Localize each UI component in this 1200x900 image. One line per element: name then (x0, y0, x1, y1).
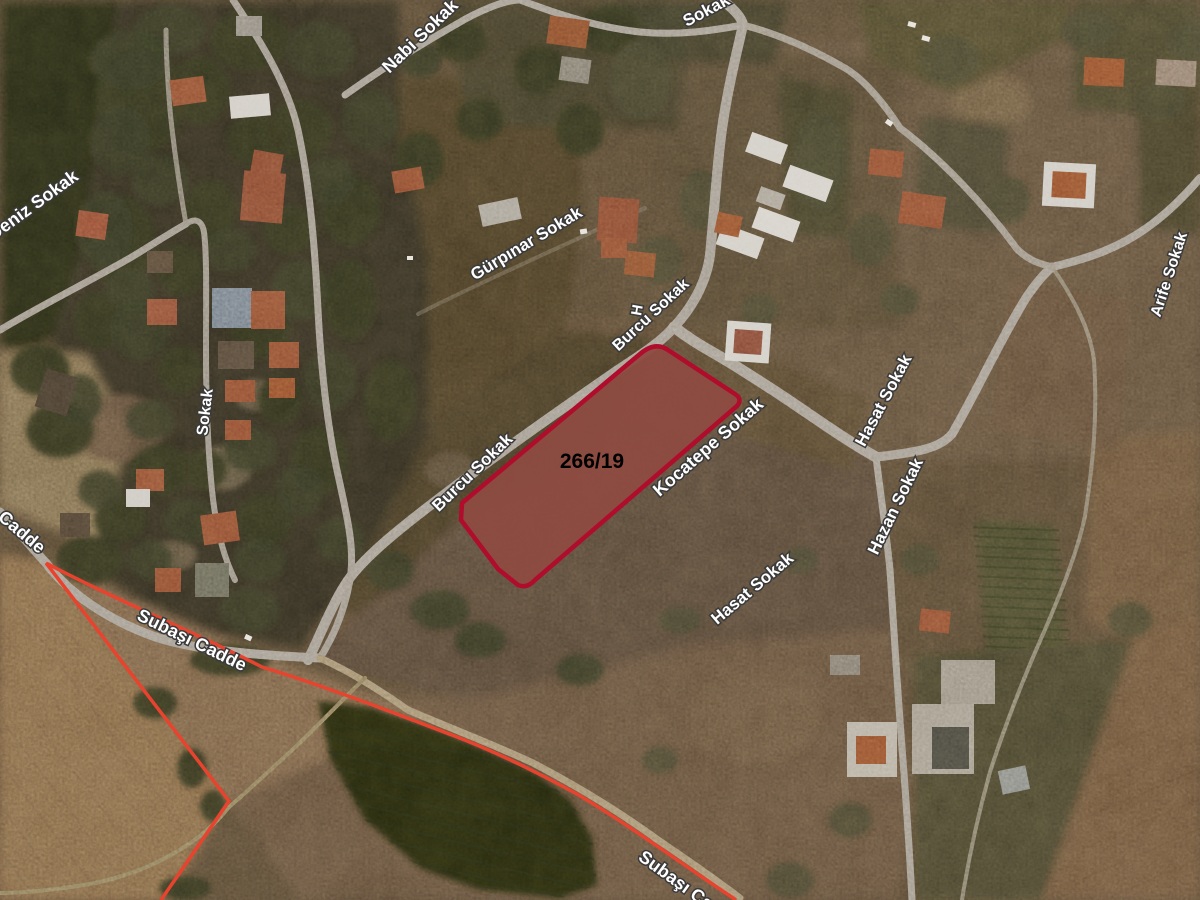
svg-text:266/19: 266/19 (560, 450, 624, 473)
